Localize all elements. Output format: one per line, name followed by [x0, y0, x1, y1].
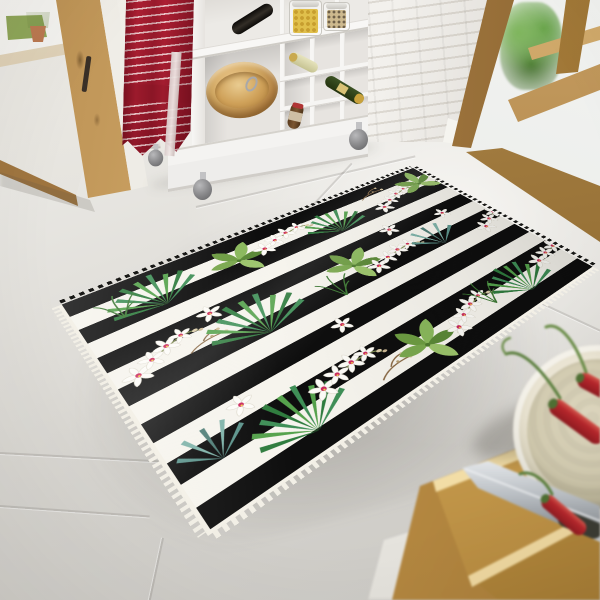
- chili-in-bowl: [544, 395, 600, 448]
- knife-and-chilies: [0, 0, 600, 600]
- kitchen-scene: [0, 0, 600, 600]
- chili-in-bowl: [573, 369, 600, 411]
